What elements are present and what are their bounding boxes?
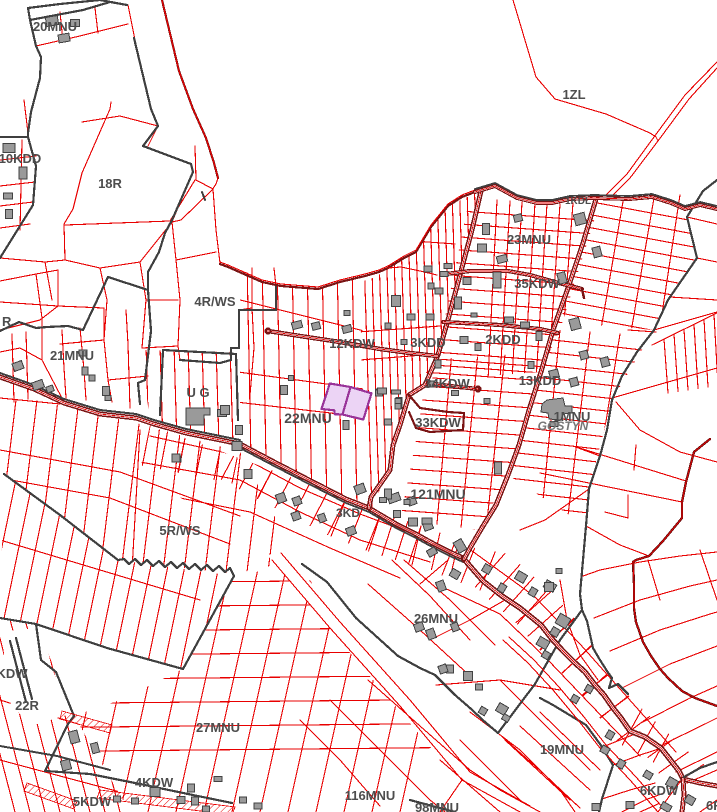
svg-text:22MNU: 22MNU bbox=[284, 410, 331, 426]
svg-text:6R: 6R bbox=[706, 798, 717, 812]
svg-text:U G: U G bbox=[186, 385, 209, 400]
svg-text:1ZL: 1ZL bbox=[562, 87, 585, 102]
svg-text:10KDD: 10KDD bbox=[0, 151, 41, 166]
svg-text:5KDW: 5KDW bbox=[73, 794, 112, 809]
svg-text:26MNU: 26MNU bbox=[414, 611, 458, 626]
svg-text:35KDW: 35KDW bbox=[514, 276, 560, 291]
svg-text:27MNU: 27MNU bbox=[196, 720, 240, 735]
svg-text:13KDD: 13KDD bbox=[519, 373, 562, 388]
svg-text:18R: 18R bbox=[98, 176, 122, 191]
svg-text:3KD: 3KD bbox=[336, 506, 360, 520]
svg-text:4R/WS: 4R/WS bbox=[194, 294, 236, 309]
svg-text:22R: 22R bbox=[15, 698, 39, 713]
svg-text:3KDD: 3KDD bbox=[410, 335, 445, 350]
svg-text:2KDD: 2KDD bbox=[485, 332, 520, 347]
svg-text:23MNU: 23MNU bbox=[507, 232, 551, 247]
svg-text:98MNU: 98MNU bbox=[415, 800, 459, 812]
svg-text:21MNU: 21MNU bbox=[50, 348, 94, 363]
svg-text:KDW: KDW bbox=[0, 666, 28, 681]
svg-text:GOSTYŃ: GOSTYŃ bbox=[538, 418, 589, 433]
svg-text:116MNU: 116MNU bbox=[345, 788, 396, 803]
svg-text:1KDL: 1KDL bbox=[565, 196, 591, 207]
svg-text:20MNU: 20MNU bbox=[33, 19, 77, 34]
svg-text:12KDW: 12KDW bbox=[329, 336, 375, 351]
svg-text:33KDW: 33KDW bbox=[415, 415, 461, 430]
svg-text:6KDW: 6KDW bbox=[640, 783, 679, 798]
svg-text:4KDW: 4KDW bbox=[135, 775, 174, 790]
svg-text:5R/WS: 5R/WS bbox=[159, 523, 201, 538]
svg-text:121MNU: 121MNU bbox=[410, 486, 465, 502]
svg-text:19MNU: 19MNU bbox=[540, 742, 584, 757]
svg-text:34KDW: 34KDW bbox=[424, 376, 470, 391]
svg-text:R: R bbox=[2, 314, 12, 329]
